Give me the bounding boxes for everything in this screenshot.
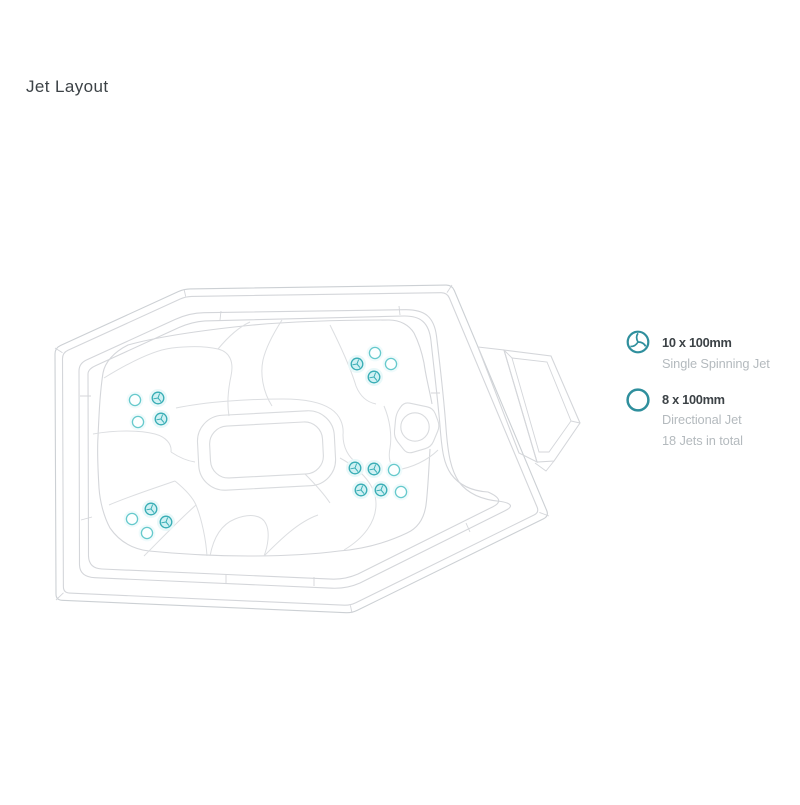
svg-text:10 x 100mm: 10 x 100mm (662, 335, 732, 350)
svg-text:8 x 100mm: 8 x 100mm (662, 392, 725, 407)
svg-text:Single Spinning Jet: Single Spinning Jet (662, 356, 770, 371)
svg-text:18 Jets in total: 18 Jets in total (662, 433, 743, 448)
svg-text:Directional Jet: Directional Jet (662, 412, 742, 427)
svg-text:Jet Layout: Jet Layout (26, 77, 108, 96)
